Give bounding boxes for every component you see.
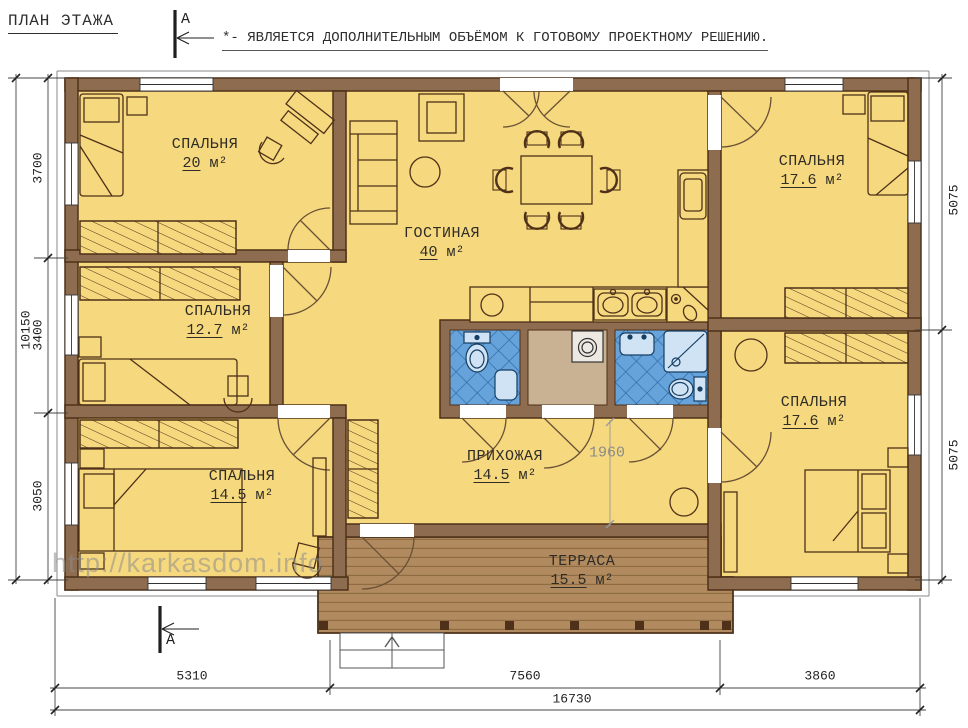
room-label-bedroom-br: СПАЛЬНЯ 17.6 м²	[734, 393, 894, 431]
floor-plan-page: ПЛАН ЭТАЖА *- ЯВЛЯЕТСЯ ДОПОЛНИТЕЛЬНЫМ ОБ…	[0, 0, 968, 728]
washbasin	[495, 370, 517, 400]
watermark: http://karkasdom.info	[52, 548, 324, 579]
window	[65, 295, 78, 355]
window	[65, 143, 78, 205]
window	[140, 78, 213, 91]
kitchen-sink	[594, 289, 666, 320]
wardrobe	[80, 420, 238, 448]
window	[785, 78, 843, 91]
dim-bottom-2: 7560	[509, 669, 540, 684]
dim-left-3: 3050	[31, 480, 46, 511]
floor-plan-drawing	[0, 0, 968, 728]
shower	[664, 331, 707, 372]
window	[908, 161, 921, 223]
dim-left-1: 3700	[31, 152, 46, 183]
hall-wardrobe	[348, 420, 378, 518]
room-label-hall: ПРИХОЖАЯ 14.5 м²	[425, 447, 585, 485]
toilet	[464, 332, 490, 372]
section-label-bottom: А	[166, 632, 175, 649]
washbasin	[620, 333, 654, 355]
dim-hall-depth: 1960	[589, 445, 625, 462]
wardrobe	[785, 333, 908, 363]
dim-bottom-total: 16730	[552, 692, 591, 707]
entrance-steps	[340, 633, 444, 668]
window	[65, 463, 78, 525]
dim-right-2: 5075	[947, 439, 962, 470]
washing-machine	[572, 331, 603, 362]
room-label-bedroom-tl: СПАЛЬНЯ 20 м²	[125, 135, 285, 173]
window	[908, 395, 921, 455]
wardrobe	[80, 267, 240, 300]
window	[791, 577, 858, 590]
room-label-bedroom-tr: СПАЛЬНЯ 17.6 м²	[732, 152, 892, 190]
dim-left-2: 3400	[31, 319, 46, 350]
page-title: ПЛАН ЭТАЖА	[8, 12, 118, 34]
dim-bottom-1: 5310	[176, 669, 207, 684]
toilet	[669, 377, 706, 401]
kitchen-counter	[470, 287, 708, 322]
wardrobe	[80, 221, 236, 254]
dim-right-1: 5075	[947, 184, 962, 215]
fridge	[678, 170, 708, 287]
footnote: *- ЯВЛЯЕТСЯ ДОПОЛНИТЕЛЬНЫМ ОБЪЁМОМ К ГОТ…	[222, 30, 768, 51]
room-label-bedroom-ml: СПАЛЬНЯ 12.7 м²	[138, 302, 298, 340]
room-label-bedroom-bl: СПАЛЬНЯ 14.5 м²	[162, 467, 322, 505]
room-label-terrace: ТЕРРАСА 15.5 м²	[502, 552, 662, 590]
dim-bottom-3: 3860	[804, 669, 835, 684]
room-label-living: ГОСТИНАЯ 40 м²	[362, 224, 522, 262]
section-label-top: А	[181, 11, 190, 28]
wardrobe	[785, 288, 908, 318]
